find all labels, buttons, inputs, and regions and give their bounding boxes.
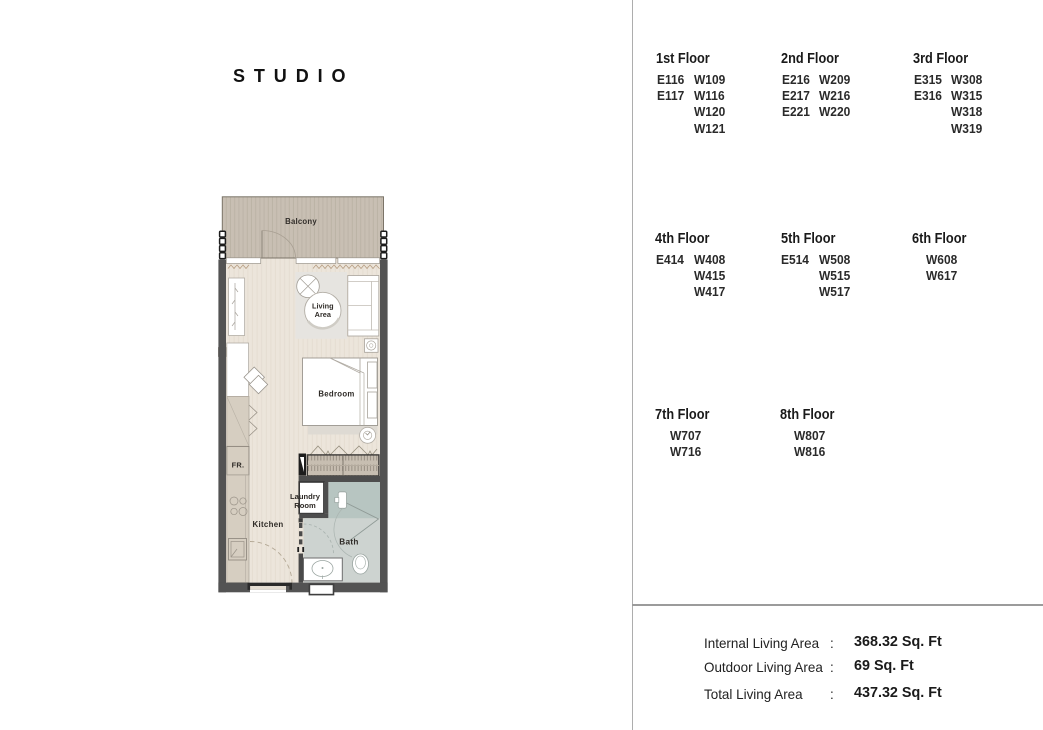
svg-text:Living: Living — [312, 302, 334, 311]
svg-text:Bath: Bath — [339, 538, 358, 547]
svg-text:Room: Room — [294, 501, 316, 510]
svg-text:Kitchen: Kitchen — [252, 520, 283, 529]
svg-text:Bedroom: Bedroom — [318, 389, 354, 398]
svg-text:Laundry: Laundry — [290, 492, 321, 501]
svg-text:FR.: FR. — [232, 461, 245, 470]
svg-text:Balcony: Balcony — [285, 217, 317, 226]
svg-text:Area: Area — [315, 310, 332, 319]
